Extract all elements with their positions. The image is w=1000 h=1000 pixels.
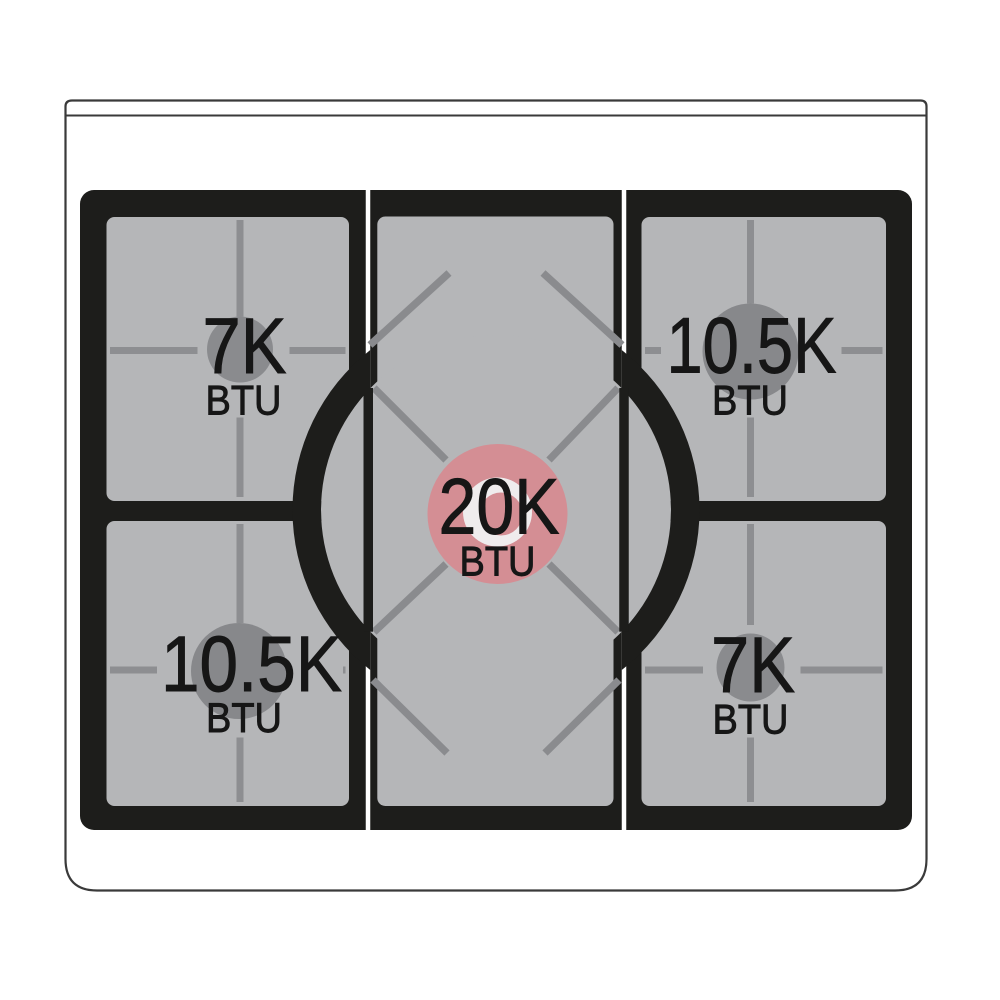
svg-text:BTU: BTU	[712, 377, 788, 424]
svg-text:BTU: BTU	[713, 696, 789, 743]
svg-text:BTU: BTU	[206, 377, 282, 424]
svg-text:BTU: BTU	[206, 694, 282, 741]
svg-text:BTU: BTU	[460, 538, 536, 585]
